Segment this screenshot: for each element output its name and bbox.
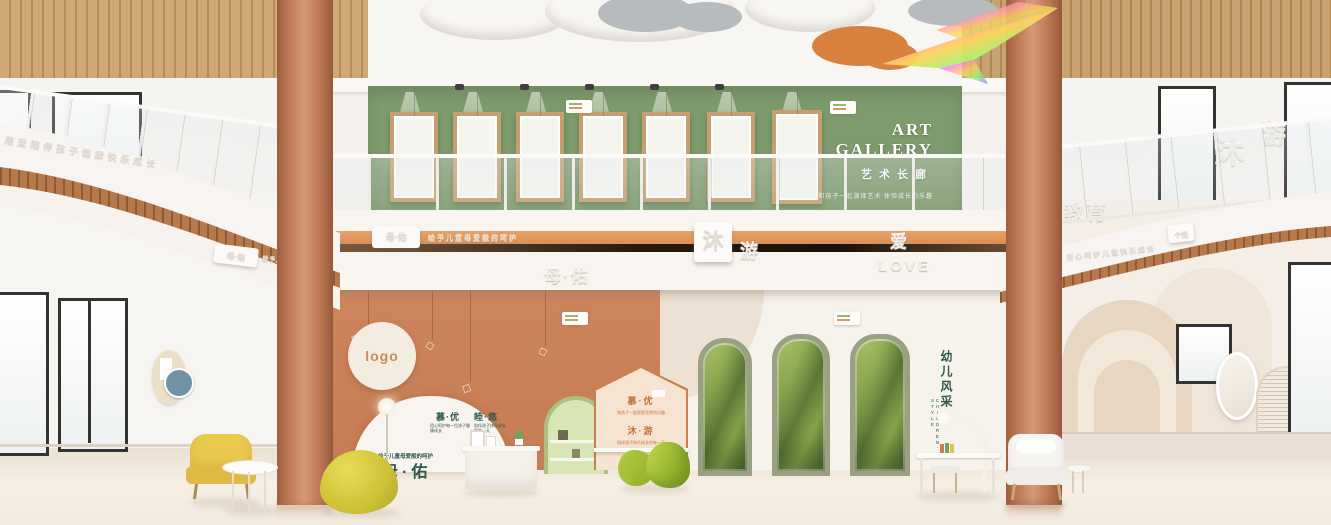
house-tag xyxy=(652,390,665,397)
house-row1: 慕·优 xyxy=(596,394,686,407)
desk-book xyxy=(945,443,949,453)
sign-ai-char: 爱 xyxy=(890,228,907,253)
window-left-ground xyxy=(58,298,128,452)
right-wainscot xyxy=(1062,432,1331,460)
niche-shelf xyxy=(550,458,594,461)
arch-brand-left: 慕·优 xyxy=(436,410,460,423)
wall-plaque xyxy=(562,312,588,325)
side-table-leg xyxy=(248,472,250,512)
airplane-sculpture xyxy=(876,0,1062,92)
window-mullion xyxy=(88,301,91,443)
badge-tagline: 给予儿童母爱般的呵护 xyxy=(428,234,518,244)
armchair-white xyxy=(1004,434,1068,504)
console-table xyxy=(462,428,540,490)
wall-plaque xyxy=(566,100,592,113)
side-table-leg xyxy=(232,471,234,511)
desk-book xyxy=(940,444,944,453)
stool-leg xyxy=(1072,471,1074,493)
side-table-leg xyxy=(264,471,266,511)
armchair-seat xyxy=(1006,470,1066,485)
desk-chair-leg xyxy=(955,473,957,493)
railing-posts xyxy=(300,158,1040,216)
display-niche xyxy=(698,338,752,476)
brand-mu-you-center: 母·佑 xyxy=(544,262,590,287)
brand-badge-left-label: 母·佑 xyxy=(386,232,407,242)
spotlight xyxy=(585,84,594,90)
shelf-item xyxy=(572,449,580,458)
niche-shelf xyxy=(550,440,594,443)
kids-style-title: 幼儿风采 xyxy=(938,350,955,410)
fascia-under-shadow xyxy=(333,288,1008,304)
desk-lamp-head xyxy=(938,412,949,423)
lobby-scene: ART GALLERY 艺术长廊 和孩子一起演绎艺术 体验成长的乐趣 沐 游 母… xyxy=(0,0,1331,525)
fascia-right-badge-label: 个性 xyxy=(1174,231,1189,239)
cloud-gray xyxy=(672,2,742,32)
desk-chair-leg xyxy=(933,473,935,493)
sign-you-char: 游 xyxy=(740,238,758,264)
wall-plaque xyxy=(834,312,860,325)
cushion-green xyxy=(646,442,690,488)
display-niche xyxy=(850,334,910,476)
spotlight xyxy=(650,84,659,90)
display-niche xyxy=(772,334,830,476)
column-left xyxy=(277,0,333,505)
armchair-leg xyxy=(193,484,198,499)
house-row2: 沐·游 xyxy=(596,424,686,437)
mirror-oval xyxy=(1216,352,1258,420)
desk-leg xyxy=(992,458,995,496)
logo-label: logo xyxy=(365,348,399,364)
armchair-pillow xyxy=(1016,439,1056,453)
spotlight xyxy=(520,84,529,90)
spotlight xyxy=(455,84,464,90)
desk-lamp-pole xyxy=(983,458,986,492)
brand-badge-left: 母·佑 xyxy=(372,226,420,248)
spotlight xyxy=(715,84,724,90)
console-body xyxy=(465,451,537,489)
fascia-center: 母·佑 给予儿童母爱般的呵护 沐 游 爱 LOVE 母·佑 xyxy=(333,210,1008,290)
side-table-top xyxy=(222,460,278,475)
sign-mu-tile: 沐 xyxy=(694,222,732,262)
desk-leg xyxy=(920,458,923,496)
window-left-ground xyxy=(0,292,49,456)
desk-top xyxy=(916,453,1000,458)
console-plant-pot xyxy=(515,439,523,445)
armchair-leg xyxy=(1011,484,1016,500)
armchair-leg xyxy=(1057,484,1062,500)
arch-brand-right: 睦·悠 xyxy=(474,410,498,423)
stool-top xyxy=(1066,464,1092,473)
study-desk xyxy=(914,410,1004,498)
shelf-item xyxy=(558,430,568,440)
stool-leg xyxy=(1082,471,1084,493)
desk-book xyxy=(950,444,954,453)
sign-love-text: LOVE xyxy=(878,258,931,275)
door-plaque-badge xyxy=(164,368,194,398)
fascia-right-badge: 个性 xyxy=(1167,223,1195,244)
sign-mu-char: 沐 xyxy=(703,230,724,253)
side-stool xyxy=(1066,464,1092,496)
fascia-left-badge-label: 母·佑 xyxy=(226,251,246,262)
side-table xyxy=(222,460,276,512)
house-row1-sub: 和孩子一起探索世界的乐趣 xyxy=(596,410,686,416)
wall-plaque xyxy=(830,101,856,114)
